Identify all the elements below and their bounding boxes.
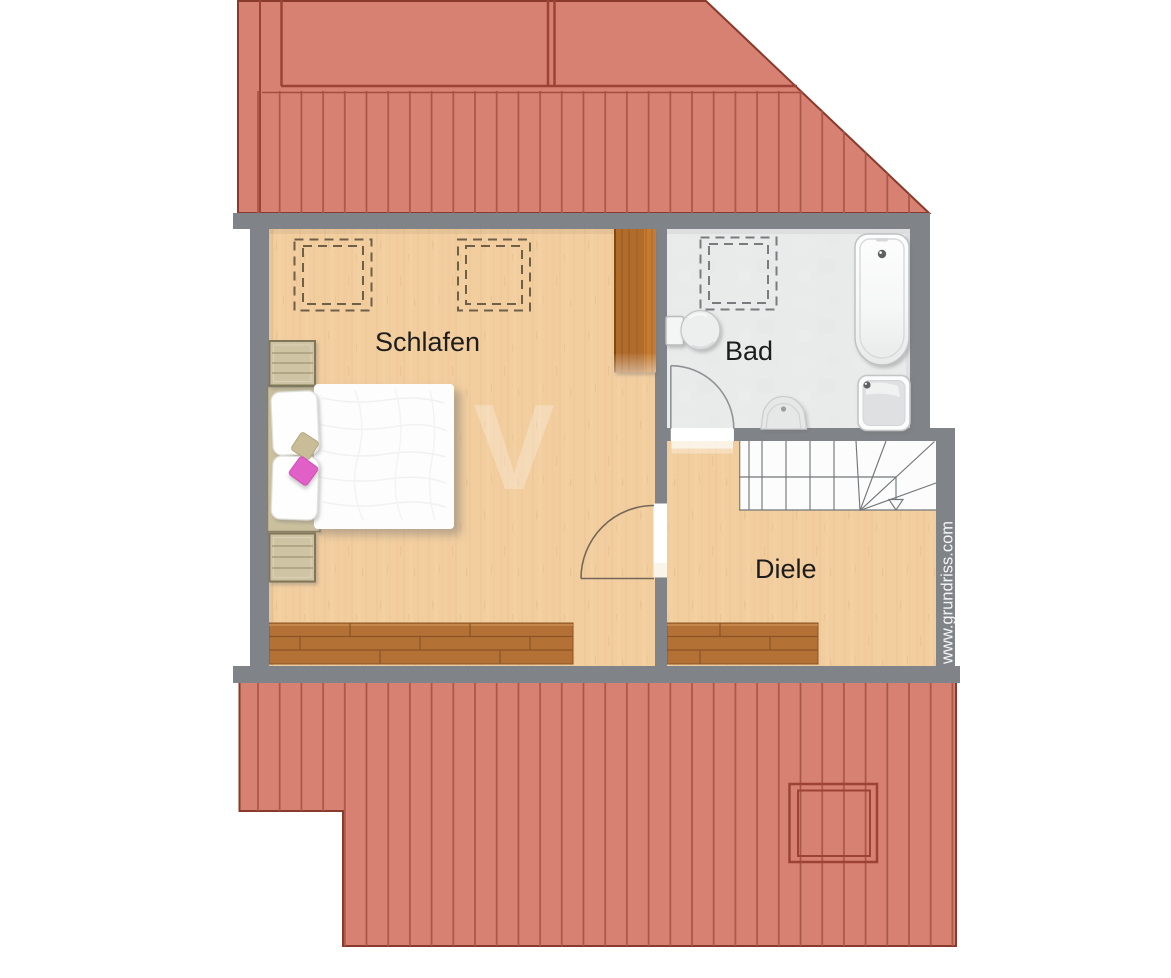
svg-text:Schlafen: Schlafen	[375, 327, 480, 357]
svg-text:Bad: Bad	[725, 336, 773, 366]
svg-text:V: V	[473, 379, 554, 515]
svg-text:www.grundriss.com: www.grundriss.com	[939, 521, 957, 665]
svg-text:Diele: Diele	[755, 554, 817, 584]
